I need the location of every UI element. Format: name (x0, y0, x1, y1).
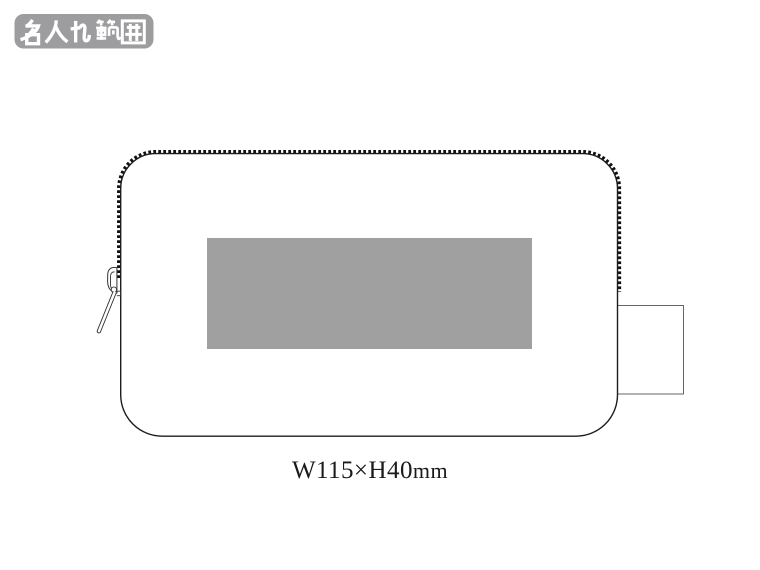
svg-text:W115×H40mm: W115×H40mm (292, 457, 448, 484)
